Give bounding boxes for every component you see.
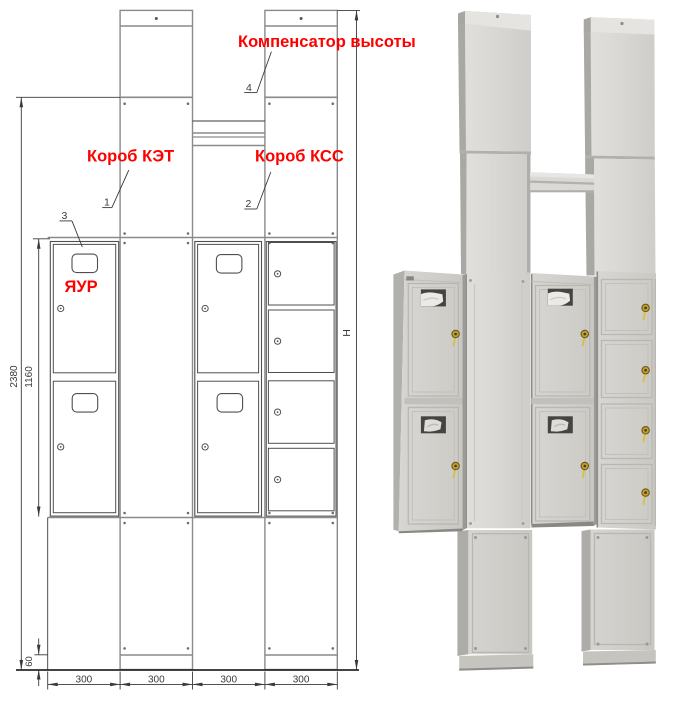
svg-text:4: 4 [246,82,252,94]
svg-text:3: 3 [62,210,68,222]
svg-text:ЯУР: ЯУР [65,278,98,296]
svg-text:H: H [341,329,353,337]
svg-text:1160: 1160 [24,366,35,388]
svg-text:300: 300 [148,675,165,686]
svg-text:60: 60 [24,656,35,667]
svg-text:Короб КЭТ: Короб КЭТ [87,148,174,166]
svg-text:1: 1 [104,197,110,209]
svg-text:2380: 2380 [9,365,20,388]
svg-text:Компенсатор высоты: Компенсатор высоты [238,33,416,51]
svg-text:2: 2 [246,198,252,210]
svg-text:300: 300 [76,675,93,686]
svg-text:Короб КСС: Короб КСС [255,148,344,166]
svg-text:300: 300 [220,675,237,686]
svg-text:300: 300 [293,675,310,686]
